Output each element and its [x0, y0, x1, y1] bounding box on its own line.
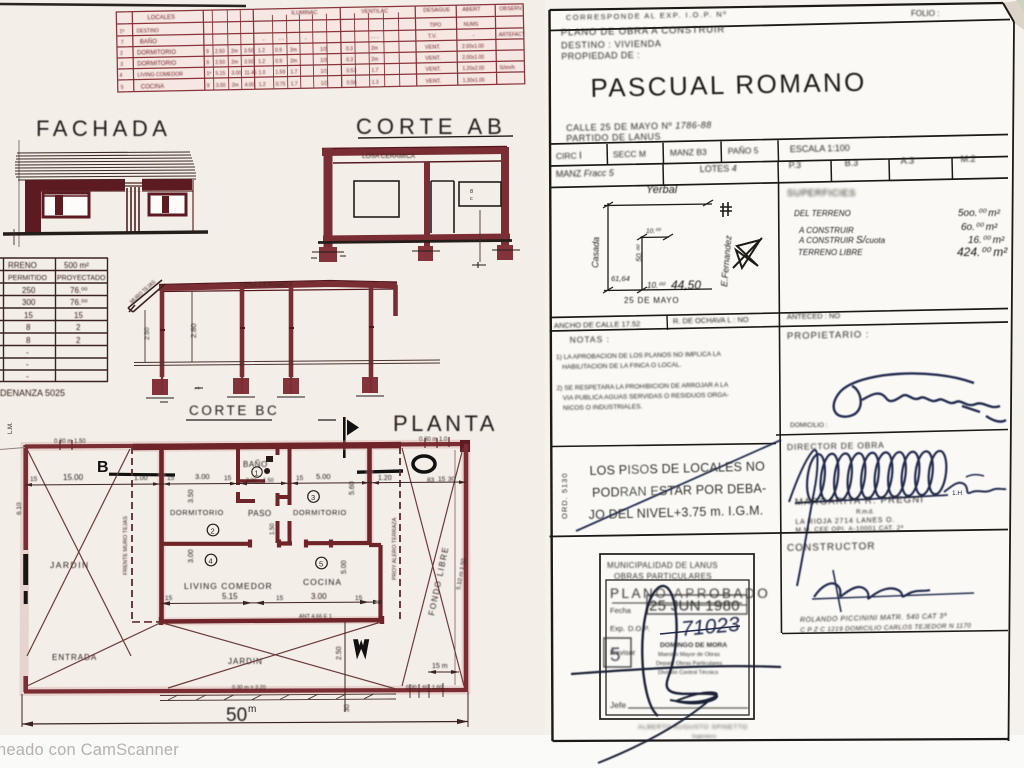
svg-text:2.50: 2.50	[215, 49, 225, 55]
svg-text:.60: .60	[421, 685, 429, 691]
svg-text:LOSA CERAMICA: LOSA CERAMICA	[362, 153, 416, 160]
svg-text:DIRECTOR DE OBRA: DIRECTOR DE OBRA	[787, 440, 885, 452]
svg-text:250: 250	[22, 286, 36, 295]
svg-text:1.2: 1.2	[258, 48, 265, 54]
svg-text:DENANZA 5025: DENANZA 5025	[0, 388, 65, 398]
svg-text:ENTRADA: ENTRADA	[52, 653, 97, 662]
svg-text:PROY ALERO TERRAZA: PROY ALERO TERRAZA	[392, 517, 398, 580]
svg-text:1.30x1.00: 1.30x1.00	[463, 78, 485, 84]
svg-text:DESTINO : VIVIENDA: DESTINO : VIVIENDA	[561, 39, 662, 51]
svg-text:B.3: B.3	[845, 158, 859, 168]
svg-text:1.7: 1.7	[291, 81, 298, 87]
svg-text:1.H: 1.H	[952, 490, 962, 497]
svg-text:SUPERFICIES: SUPERFICIES	[787, 188, 856, 199]
svg-text:500 m²: 500 m²	[64, 261, 89, 270]
svg-text:FACHADA: FACHADA	[36, 116, 171, 141]
svg-text:61,64: 61,64	[611, 274, 630, 283]
svg-text:1/3: 1/3	[320, 47, 327, 53]
svg-text:1.50: 1.50	[270, 523, 276, 535]
svg-text:5.15: 5.15	[222, 592, 238, 601]
svg-text:10.⁰⁰: 10.⁰⁰	[646, 228, 662, 235]
svg-text:Ingeniero: Ingeniero	[692, 734, 716, 740]
svg-text:2m: 2m	[232, 83, 239, 89]
svg-text:76.⁰⁰: 76.⁰⁰	[70, 298, 88, 307]
svg-text:1/2: 1/2	[321, 81, 328, 87]
svg-text:DORMITORIO: DORMITORIO	[137, 50, 176, 57]
svg-text:Revisor: Revisor	[610, 648, 636, 657]
svg-text:- -: - -	[279, 37, 284, 43]
svg-text:0.30 m 1.0: 0.30 m 1.0	[419, 437, 448, 443]
svg-text:PROPIEDAD DE :: PROPIEDAD DE :	[561, 50, 640, 62]
svg-text:DORMITORIO: DORMITORIO	[293, 508, 347, 517]
svg-text:50: 50	[226, 705, 247, 726]
svg-text:FRENTE MURO TEJAS: FRENTE MURO TEJAS	[123, 516, 129, 575]
svg-text:3.50: 3.50	[244, 59, 254, 65]
svg-text:A.3: A.3	[901, 156, 915, 166]
svg-text:44,50: 44,50	[671, 278, 701, 292]
svg-text:1.7: 1.7	[371, 68, 378, 74]
svg-text:Fecha: Fecha	[610, 606, 632, 615]
svg-text:9: 9	[206, 60, 209, 66]
svg-text:R. DE OCHAVA L : NO: R. DE OCHAVA L : NO	[673, 315, 749, 326]
svg-text:1/3: 1/3	[320, 58, 327, 64]
svg-text:MANZ B3: MANZ B3	[670, 147, 707, 158]
svg-text:1/1: 1/1	[320, 69, 327, 75]
svg-text:COCINA: COCINA	[141, 84, 164, 90]
svg-text:-: -	[26, 360, 29, 369]
svg-text:FOLIO :: FOLIO :	[911, 9, 939, 18]
svg-text:5.15: 5.15	[215, 71, 225, 77]
svg-text:VENT.: VENT.	[425, 55, 441, 61]
svg-text:2: 2	[76, 336, 81, 345]
svg-text:4.00: 4.00	[245, 82, 255, 88]
svg-text:5.60: 5.60	[349, 481, 356, 495]
svg-text:LOSA CERAMICA: LOSA CERAMICA	[240, 282, 294, 289]
svg-text:OBSERV.: OBSERV.	[499, 6, 523, 12]
svg-text:9: 9	[207, 83, 210, 89]
svg-text:2.50: 2.50	[215, 60, 225, 66]
svg-text:DESTINO: DESTINO	[137, 28, 159, 34]
svg-text:8: 8	[26, 323, 31, 332]
svg-text:3.00: 3.00	[216, 83, 226, 89]
svg-text:VENT.: VENT.	[425, 44, 441, 50]
svg-text:2: 2	[211, 527, 215, 536]
svg-text:2.80: 2.80	[189, 323, 198, 338]
svg-text:30: 30	[448, 476, 456, 483]
svg-text:1.60: 1.60	[432, 685, 443, 691]
svg-text:2.50: 2.50	[336, 646, 343, 660]
svg-text:A CONSTRUIR S/cuota: A CONSTRUIR S/cuota	[798, 235, 886, 246]
svg-text:1.2: 1.2	[258, 59, 265, 65]
svg-text:DORMITORIO: DORMITORIO	[170, 508, 224, 517]
svg-text:1.2: 1.2	[259, 82, 266, 88]
svg-text:OBRAS PARTICULARES: OBRAS PARTICULARES	[614, 572, 712, 581]
svg-text:SECC M: SECC M	[613, 149, 646, 160]
svg-text:2.50: 2.50	[144, 327, 151, 340]
svg-text:1.20x2.00: 1.20x2.00	[462, 66, 484, 72]
svg-text:DOMINGO DE MORA: DOMINGO DE MORA	[660, 642, 727, 649]
svg-text:2: 2	[120, 51, 123, 57]
svg-text:DOMICILIO :: DOMICILIO :	[790, 422, 828, 429]
svg-text:0.75: 0.75	[276, 82, 286, 88]
svg-text:RRENO: RRENO	[8, 261, 37, 270]
svg-text:1: 1	[255, 471, 259, 478]
svg-text:-: -	[26, 348, 29, 357]
svg-text:0.53: 0.53	[346, 68, 356, 74]
svg-text:1: 1	[194, 386, 201, 390]
svg-text:15.00: 15.00	[63, 473, 84, 482]
svg-text:NOTAS :: NOTAS :	[570, 334, 611, 345]
svg-text:neado con CamScanner: neado con CamScanner	[0, 741, 179, 759]
svg-text:1.0: 1.0	[258, 70, 265, 76]
svg-text:-: -	[26, 372, 29, 381]
svg-text:15 m: 15 m	[432, 663, 448, 670]
svg-text:2m: 2m	[290, 58, 297, 64]
svg-text:Yerbal: Yerbal	[646, 184, 678, 196]
svg-text:LIVING COMEDOR: LIVING COMEDOR	[137, 72, 183, 79]
svg-text:Jefe: Jefe	[610, 700, 626, 710]
svg-text:c: c	[470, 196, 473, 202]
svg-text:DEL TERRENO: DEL TERRENO	[794, 209, 851, 218]
svg-text:Maestro Mayor de Obras: Maestro Mayor de Obras	[658, 652, 720, 658]
svg-text:1.00: 1.00	[134, 475, 148, 482]
svg-text:ARTEFACT: ARTEFACT	[499, 32, 525, 39]
svg-text:1ª: 1ª	[206, 71, 211, 77]
svg-text:50.⁰⁰: 50.⁰⁰	[634, 244, 644, 262]
svg-text:0.30 m 1.50: 0.30 m 1.50	[54, 439, 86, 445]
svg-text:10.⁰⁰: 10.⁰⁰	[647, 281, 666, 290]
svg-text:- - -: - - -	[371, 35, 379, 41]
svg-text:ILUMINAC: ILUMINAC	[291, 10, 317, 17]
svg-text:S/im/h: S/im/h	[499, 65, 515, 71]
svg-text:0.9: 0.9	[275, 48, 282, 54]
svg-text:30: 30	[344, 704, 351, 712]
svg-text:1.7: 1.7	[290, 69, 297, 75]
svg-text:ALBERTO AUGUSTO SPINETTO: ALBERTO AUGUSTO SPINETTO	[638, 724, 748, 731]
svg-text:A CONSTRUIR: A CONSTRUIR	[798, 226, 854, 235]
svg-text:6o.⁰⁰ m²: 6o.⁰⁰ m²	[961, 222, 998, 233]
svg-text:M.2: M.2	[961, 154, 976, 164]
svg-text:8: 8	[26, 336, 31, 345]
svg-text:PROPIETARIO :: PROPIETARIO :	[787, 329, 870, 342]
svg-text:Casada: Casada	[590, 237, 601, 268]
svg-text:9: 9	[206, 49, 209, 55]
svg-text:83: 83	[427, 477, 435, 484]
svg-text:CORTE BC: CORTE BC	[189, 403, 279, 418]
svg-text:300: 300	[22, 298, 36, 307]
svg-text:CONSTRUCTOR: CONSTRUCTOR	[787, 541, 876, 554]
svg-text:MUNICIPALIDAD DE LANUS: MUNICIPALIDAD DE LANUS	[607, 561, 718, 570]
svg-text:L.M.: L.M.	[8, 422, 14, 434]
svg-text:15: 15	[30, 476, 38, 483]
svg-text:3.00: 3.00	[195, 472, 210, 481]
svg-text:ANTECED : NO: ANTECED : NO	[787, 311, 841, 321]
svg-text:3.00: 3.00	[231, 71, 241, 77]
svg-text:5oo.⁰⁰ m²: 5oo.⁰⁰ m²	[958, 208, 1001, 219]
svg-text:ABERT: ABERT	[462, 7, 481, 13]
svg-text:15: 15	[167, 475, 175, 482]
svg-text:2m: 2m	[290, 47, 297, 53]
svg-text:5: 5	[121, 85, 124, 91]
svg-text:2m: 2m	[231, 49, 238, 55]
svg-text:ANT 4.66 E 1: ANT 4.66 E 1	[299, 614, 332, 620]
svg-text:División Control Técnico: División Control Técnico	[658, 670, 718, 676]
svg-text:2m: 2m	[371, 46, 378, 52]
svg-text:VENTILAC: VENTILAC	[361, 9, 388, 16]
svg-text:3.00: 3.00	[188, 549, 195, 563]
svg-text:25 DE MAYO: 25 DE MAYO	[624, 296, 679, 305]
svg-text:COCINA: COCINA	[303, 577, 342, 587]
svg-text:15: 15	[74, 311, 83, 320]
svg-text:T.V.: T.V.	[428, 34, 438, 40]
svg-text:Exp.: Exp.	[610, 624, 625, 633]
svg-text:LOTES 4: LOTES 4	[700, 163, 737, 174]
svg-text:VENT.: VENT.	[425, 66, 441, 72]
svg-text:5: 5	[319, 560, 323, 569]
svg-text:8: 8	[470, 189, 473, 195]
svg-text:15: 15	[355, 595, 363, 602]
svg-text:CIRC I: CIRC I	[556, 151, 582, 163]
svg-text:0.3: 0.3	[346, 57, 353, 63]
svg-text:15: 15	[24, 311, 33, 320]
svg-text:2.00x1.00: 2.00x1.00	[462, 44, 484, 50]
svg-text:PLANTA: PLANTA	[393, 411, 498, 436]
svg-text:PROYECTADO: PROYECTADO	[57, 275, 106, 282]
svg-text:CORTE AB: CORTE AB	[356, 114, 507, 139]
svg-text:3.50: 3.50	[244, 48, 254, 54]
svg-text:4: 4	[119, 73, 122, 79]
svg-text:MANZ Fracc 5: MANZ Fracc 5	[556, 168, 615, 179]
svg-text:0.3: 0.3	[346, 46, 353, 52]
svg-text:7: 7	[121, 40, 124, 46]
svg-text:PASCUAL ROMANO: PASCUAL ROMANO	[590, 67, 867, 103]
svg-text:76.⁰⁰: 76.⁰⁰	[70, 286, 88, 295]
svg-text:4: 4	[209, 557, 213, 566]
svg-text:2m: 2m	[371, 57, 378, 63]
svg-text:2: 2	[76, 323, 81, 332]
svg-text:D.O.P.: D.O.P.	[628, 624, 650, 633]
svg-text:15: 15	[296, 475, 304, 482]
svg-text:15: 15	[224, 475, 232, 482]
svg-text:0.56: 0.56	[347, 80, 357, 86]
svg-text:3: 3	[311, 493, 315, 502]
svg-text:R.m.d.: R.m.d.	[856, 509, 874, 515]
svg-text:LIVING COMEDOR: LIVING COMEDOR	[184, 581, 273, 591]
svg-text:15: 15	[165, 595, 173, 602]
svg-text:1ª: 1ª	[120, 29, 125, 35]
svg-text:NUMS: NUMS	[464, 22, 480, 28]
svg-text:PAÑO 5: PAÑO 5	[728, 145, 759, 156]
svg-text:PASO: PASO	[248, 509, 272, 518]
svg-text:ORD. 5130: ORD. 5130	[560, 472, 569, 519]
svg-text:1.59: 1.59	[275, 70, 285, 76]
svg-text:5.00: 5.00	[341, 560, 348, 574]
svg-text:0.9: 0.9	[275, 59, 282, 65]
svg-text:1.20: 1.20	[378, 475, 392, 482]
svg-text:TIPO: TIPO	[430, 22, 442, 28]
svg-text:11.45: 11.45	[244, 70, 256, 76]
svg-text:B: B	[97, 459, 109, 476]
svg-text:ANCHO DE CALLE 17.52: ANCHO DE CALLE 17.52	[554, 319, 640, 330]
svg-text:0.30: 0.30	[406, 685, 417, 691]
svg-text:ESCALA 1:100: ESCALA 1:100	[790, 143, 850, 154]
svg-text:m: m	[248, 704, 256, 715]
svg-text:LOCALES: LOCALES	[147, 15, 175, 22]
svg-text:15: 15	[276, 595, 284, 602]
svg-text:BAÑO: BAÑO	[140, 38, 157, 45]
svg-text:5.00: 5.00	[316, 472, 331, 481]
svg-text:15: 15	[438, 476, 446, 483]
svg-text:TERRENO LIBRE: TERRENO LIBRE	[798, 248, 863, 257]
svg-text:DESAGUE: DESAGUE	[423, 7, 450, 14]
svg-text:DORMITORIO: DORMITORIO	[137, 61, 176, 68]
svg-text:2.00x1.00: 2.00x1.00	[462, 55, 484, 61]
svg-text:424.⁰⁰ m²: 424.⁰⁰ m²	[957, 245, 1008, 259]
svg-text:3.00: 3.00	[311, 592, 327, 601]
svg-text:0.30 m = 3.20: 0.30 m = 3.20	[232, 685, 266, 691]
svg-text:P.3: P.3	[789, 160, 802, 170]
svg-text:VENT.: VENT.	[426, 78, 442, 84]
svg-text:25 JUN 1980: 25 JUN 1980	[649, 598, 740, 615]
svg-text:PERMITIDO: PERMITIDO	[8, 275, 47, 282]
svg-text:1.3: 1.3	[372, 80, 379, 86]
svg-text:JARDIN: JARDIN	[228, 657, 263, 666]
svg-text:2m: 2m	[231, 60, 238, 66]
svg-text:3.50: 3.50	[188, 489, 195, 503]
svg-text:3: 3	[120, 62, 123, 68]
svg-text:6.10: 6.10	[16, 502, 23, 515]
